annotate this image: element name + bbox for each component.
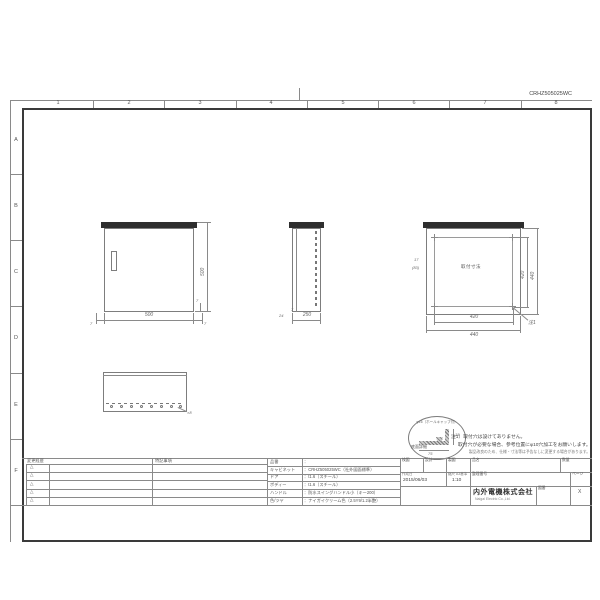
side-door-line — [296, 228, 297, 312]
approval-draft-label: 製図 — [448, 459, 456, 463]
side-gap-dim: 7 — [291, 308, 293, 312]
knockout-hole — [120, 405, 123, 408]
dim-line — [426, 330, 521, 331]
approval-check-label: 検図 — [402, 459, 410, 463]
notes-header: 特記事項 — [155, 459, 172, 463]
front-body — [104, 228, 194, 312]
outer-border-left — [10, 100, 11, 542]
tb-line — [22, 505, 592, 506]
note1-line1: 注1）取付穴は設けてありません。 — [451, 436, 525, 441]
spec-label: ボディー — [270, 483, 286, 487]
spec-value: ：t1.6（スチール） — [304, 475, 340, 479]
detail-section-upright — [445, 429, 449, 443]
dim-line — [527, 237, 528, 307]
front-gap-dim: 7 — [196, 299, 198, 303]
front-overhang-right-dim: 7 — [204, 322, 206, 326]
dim-line — [537, 228, 538, 314]
approval-design-label: 設計 — [425, 459, 433, 463]
grid-row-label: F — [14, 469, 17, 475]
dim-line — [200, 303, 201, 311]
revision-mark: △ — [30, 465, 33, 470]
drawing-no-label: 図番 — [538, 487, 546, 491]
side-hinge-dashes — [315, 231, 317, 309]
tb-line — [26, 489, 267, 490]
rear-label: 取付寸法 — [461, 265, 481, 270]
bottom-hole-count: ×8 — [187, 411, 192, 415]
spec-value: ： — [304, 460, 308, 464]
tb-line — [470, 458, 471, 505]
ref-no-label: 整理番号 — [472, 473, 487, 477]
rear-pitch-h-dim: 420 — [521, 271, 526, 279]
row-tick — [10, 240, 22, 241]
grid-row-label: D — [14, 336, 18, 342]
page-label: ページ — [572, 473, 583, 477]
disclaimer-text: 製品改良のため、仕様・寸法等は予告なしに変更する場合があります。 — [300, 451, 590, 455]
hole-mark — [434, 234, 435, 241]
scale-label: 縮尺 A3基準 — [448, 473, 467, 477]
rear-pitch-rect — [434, 237, 513, 307]
knockout-hole — [150, 405, 153, 408]
spec-value: ：t1.6（スチール） — [304, 483, 340, 487]
col-tick — [307, 100, 308, 108]
scale-value: 1:10 — [452, 479, 461, 484]
revision-mark: △ — [30, 498, 33, 503]
spec-value: ：CRHZ505025WC（社外図面標準） — [304, 468, 374, 472]
side-door-dim: 24 — [279, 314, 283, 318]
tb-line — [26, 472, 267, 473]
outer-border-top — [10, 100, 592, 101]
row-tick — [10, 505, 22, 506]
side-depth-dim: 250 — [303, 313, 311, 318]
spec-label: 色/ツヤ — [270, 499, 284, 503]
spec-label: 品番 — [270, 460, 278, 464]
row-tick — [10, 306, 22, 307]
grid-col-label: 4 — [269, 101, 272, 107]
grid-row-label: B — [14, 204, 18, 210]
ext-line — [96, 313, 97, 324]
col-tick — [164, 100, 165, 108]
note1-line2: 取付穴が必要な場合、参考位置にφ10穴加工をお願いします。 — [458, 444, 591, 449]
qty-label: 数量 — [562, 459, 570, 463]
drawing-sheet: CRHZ505025WC 1 2 3 4 5 6 7 8 A B C D E F… — [0, 0, 600, 600]
detail-hole-label: φ16（ホールキャップ付） — [416, 421, 457, 425]
row-tick — [10, 373, 22, 374]
tb-line — [470, 486, 592, 487]
tb-line — [400, 486, 470, 487]
tb-line — [570, 472, 571, 505]
ext-line — [522, 314, 539, 315]
knockout-hole — [110, 405, 113, 408]
spec-label: ハンドル — [270, 491, 287, 495]
bottom-dashed-line — [106, 403, 184, 404]
tb-line — [26, 464, 267, 465]
revision-mark: △ — [30, 482, 33, 487]
product-label: 品名 — [472, 459, 480, 463]
row-tick — [10, 174, 22, 175]
rear-left-dim-bottom: (83) — [412, 266, 419, 270]
company-name-en: Naigai Electric Co.,Ltd. — [475, 498, 511, 502]
grid-col-label: 6 — [412, 101, 415, 107]
dim-line — [434, 322, 513, 323]
tb-line — [423, 458, 424, 472]
grid-col-label: 3 — [198, 101, 201, 107]
front-width-dim: 500 — [145, 313, 153, 318]
rear-left-dim-top: 17 — [414, 258, 418, 262]
detail-hole-cap — [436, 437, 443, 441]
created-label: 作成日 — [402, 473, 413, 477]
knockout-hole — [170, 405, 173, 408]
grid-col-label: 2 — [127, 101, 130, 107]
spec-value: ：防水スイングハンドル小（キー200） — [304, 491, 378, 495]
sheet-mark: X — [578, 490, 581, 495]
ext-line — [195, 311, 211, 312]
knockout-hole — [130, 405, 133, 408]
revision-mark: △ — [30, 490, 33, 495]
rear-overall-h-dim: 440 — [531, 272, 536, 280]
revision-mark: △ — [30, 473, 33, 478]
tb-line — [536, 486, 537, 505]
ext-line — [320, 313, 321, 324]
revision-header: 変更経歴 — [27, 459, 44, 463]
front-handle — [111, 251, 117, 271]
grid-col-label: 8 — [554, 101, 557, 107]
created-date: 2015/06/03 — [403, 479, 427, 484]
company-name: 内外電機株式会社 — [473, 489, 533, 496]
dim-line — [96, 320, 203, 321]
knockout-hole — [140, 405, 143, 408]
ext-line — [292, 313, 293, 324]
spec-label: ドア — [270, 475, 278, 479]
col-tick — [236, 100, 237, 108]
top-center-mark — [299, 88, 300, 100]
front-height-dim: 500 — [201, 268, 206, 276]
row-tick — [10, 439, 22, 440]
spec-label: キャビネット — [270, 468, 295, 472]
ext-line — [193, 313, 194, 324]
tb-line — [26, 480, 267, 481]
scale-label-text: 縮尺 — [448, 472, 455, 476]
tb-line — [560, 458, 561, 472]
col-tick — [378, 100, 379, 108]
rear-note-ref: 注1 — [528, 321, 536, 326]
tb-line — [49, 464, 50, 505]
drawing-number: CRHZ505025WC — [472, 92, 572, 98]
grid-row-label: A — [14, 138, 18, 144]
dim-line — [292, 320, 321, 321]
scale-basis-text: A3基準 — [456, 472, 467, 476]
grid-col-label: 5 — [341, 101, 344, 107]
grid-col-label: 1 — [56, 101, 59, 107]
front-overhang-left-dim: 7 — [90, 322, 92, 326]
rear-pitch-w-dim: 420 — [470, 315, 478, 320]
tb-line — [400, 458, 401, 505]
grid-row-label: C — [14, 270, 18, 276]
ext-line — [514, 307, 529, 308]
ext-line — [104, 313, 105, 324]
bottom-edge-line — [103, 375, 187, 376]
col-tick — [93, 100, 94, 108]
knockout-hole — [160, 405, 163, 408]
dim-line — [207, 222, 208, 312]
tb-line — [26, 497, 267, 498]
grid-row-label: E — [14, 403, 18, 409]
grid-col-label: 7 — [483, 101, 486, 107]
col-tick — [449, 100, 450, 108]
spec-value: ：ナイガイクリーム色（2.5Y9/1.2半艶） — [304, 499, 380, 503]
ext-line — [202, 313, 203, 324]
detail-caption: 底面詳細 — [411, 445, 427, 449]
col-tick — [521, 100, 522, 108]
bottom-body — [103, 372, 187, 412]
ext-line — [197, 222, 211, 223]
rear-overall-w-dim: 440 — [470, 333, 478, 338]
tb-line — [26, 464, 27, 505]
hole-mark — [512, 234, 513, 241]
ext-line — [513, 308, 514, 325]
